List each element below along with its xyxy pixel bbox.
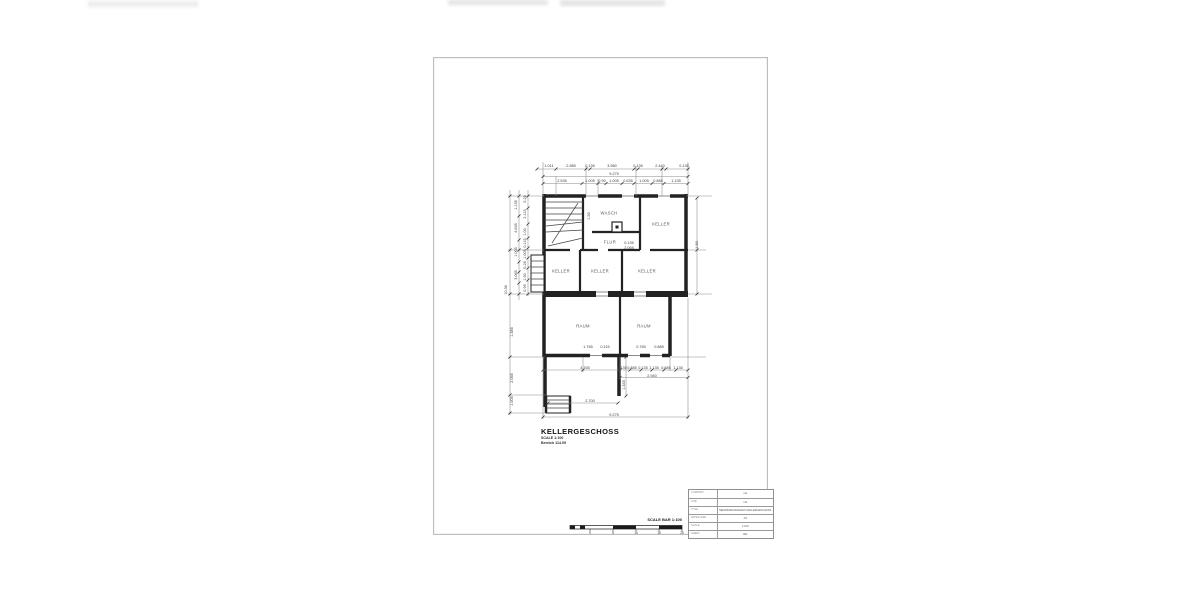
dimension-label: 1.135 [649,366,659,370]
title-block-row-value: n/a [718,499,773,506]
dimension-label: 0.885 [627,366,637,370]
dimension-label: 2.065 [624,246,634,250]
dimension-label: 0.885 [653,179,663,183]
room-label: WASCH [601,211,618,216]
room-label: KELLER [591,269,609,274]
dimension-label: 0.135 [585,164,595,168]
dimension-label: 4.635 [514,223,518,233]
dimension-label: 1.135 [514,200,518,210]
title-block-row-value: A01 [718,531,773,538]
title-block-row-label: TITLE [689,507,718,514]
room-label: RAUM [637,324,651,329]
dimension-label: 1.005 [514,247,518,257]
dimension-label: 1.385 [510,327,514,337]
dimension-label: 1.345 [622,380,626,390]
dimension-label: 1.00 [523,228,527,235]
title-block: COMPANYn/aSITEn/aTITLEMEHRFAMILIENHAUS K… [688,489,774,539]
dimension-label: 0.135 [679,164,689,168]
dimension-label: 0.765 [636,345,646,349]
room-label: KELLER [552,269,570,274]
dimension-label: 1.135 [673,366,683,370]
dimension-label: 4.765 [580,366,590,370]
dimension-label: 1.50 [523,273,527,280]
dimension-label: 1.005 [639,179,649,183]
title-block-row-label: SCALE [689,523,718,530]
floorplan-svg [0,0,1200,600]
room-label: KELLER [652,222,670,227]
dimension-label: 3.065 [514,270,518,280]
title-block-row-label: SHEET [689,531,718,538]
title-block-row-value: n/a [718,490,773,498]
dimension-label: 0.135 [633,164,643,168]
dimension-label: 0.99 [523,284,527,291]
dimension-label: 0.115 [600,345,609,349]
title-block-row: SCALE1:100 [689,522,773,530]
dimension-label: 0.135 [624,241,634,245]
dimension-label: 10.36 [504,285,508,295]
title-block-row-label: COMPANY [689,490,718,498]
scale-bar-tick: 5 [612,531,614,535]
title-block-row: SITEn/a [689,498,773,506]
dimension-label: 0.135 [617,366,627,370]
room-label: FLUR [604,240,616,245]
title-block-row-value: MEHRFAMILIENHAUS KELLERGESCHOSS [718,507,773,514]
title-block-row: TITLEMEHRFAMILIENHAUS KELLERGESCHOSS [689,506,773,514]
dimension-label: 1.005 [585,179,595,183]
dimension-label: 2.940 [647,374,657,378]
dimension-label: 0.885 [661,366,671,370]
dimension-label: 2.115 [523,209,527,218]
dimension-label: 0.26 [523,195,527,202]
dimension-label: 1.005 [510,396,514,406]
scale-bar-label: SCALE BAR 1:100 [600,517,682,522]
dimension-label: 1.50 [695,241,699,248]
dimension-label: 1.005 [523,249,527,259]
dimension-label: 0.90 [598,179,605,183]
plan-title: KELLERGESCHOSS [541,427,619,436]
dimension-label: 0.135 [638,366,648,370]
dimension-label: 1.50 [587,212,591,219]
dimension-label: 0.885 [654,345,664,349]
room-label: RAUM [576,324,590,329]
scale-bar-tick: 0 [589,531,591,535]
dimension-label: 1.765 [583,345,593,349]
dimension-label: 0.115 [523,238,527,247]
plan-area-note: Bereich 114.09 [541,441,566,445]
title-block-row: SHEETA01 [689,530,773,538]
scale-bar-tick: 15 [657,531,661,535]
title-block-row-label: PAPER SIZE [689,515,718,522]
dimension-label: 9.275 [609,172,619,176]
dimension-label: 9.275 [609,413,619,417]
room-label: KELLER [638,269,656,274]
plan-scale-note: SCALE 1:100 [541,436,563,440]
dimension-label: 2.440 [655,164,665,168]
title-block-row-value: 1:100 [718,523,773,530]
title-block-row: PAPER SIZEA3 [689,514,773,522]
dimension-label: 1.011 [544,164,553,168]
scale-bar-tick: 10 [634,531,638,535]
title-block-row-label: SITE [689,499,718,506]
dimension-label: 2.535 [557,179,567,183]
dimension-label: 0.635 [623,179,633,183]
title-block-row-value: A3 [718,515,773,522]
dimension-label: 2.985 [566,164,576,168]
dimension-label: 1.005 [609,179,619,183]
title-block-row: COMPANYn/a [689,490,773,498]
dimension-label: 2.065 [510,373,514,383]
dimension-label: 1.135 [671,179,681,183]
dimension-label: 2.700 [585,399,595,403]
scanned-page: WASCHKELLERFLURKELLERKELLERKELLERRAUMRAU… [0,0,1200,600]
dimension-label: 0.26 [523,261,527,268]
scale-bar-tick: 20 [680,531,684,535]
dimension-label: 3.980 [607,164,617,168]
